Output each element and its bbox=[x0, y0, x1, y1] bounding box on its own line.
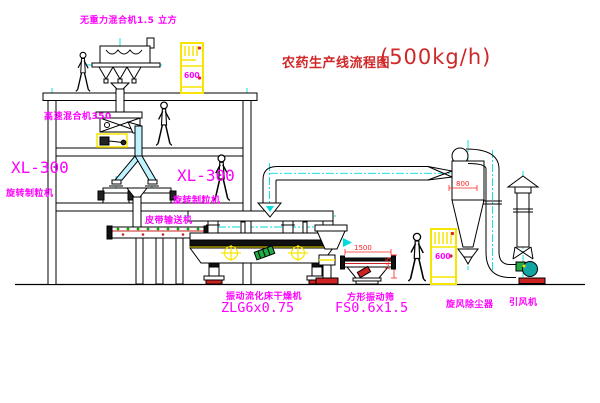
exhaust-stack bbox=[508, 176, 538, 259]
cabinet2-mark: 600 bbox=[435, 252, 451, 261]
label-belt-conveyor: 皮带输送机 bbox=[145, 213, 193, 226]
diagram-capacity: (500kg/h) bbox=[380, 45, 491, 69]
dim-sieve-width: 1500 bbox=[354, 244, 372, 252]
label-granulator-right-name: 旋转制粒机 bbox=[173, 193, 221, 206]
fluid-bed-dryer bbox=[190, 221, 335, 284]
person-top-floor bbox=[76, 52, 90, 91]
dim-cyclone: 800 bbox=[456, 180, 469, 188]
label-sieve-model: FS0.6x1.5 bbox=[335, 300, 408, 316]
label-granulator-left-name: 旋转制粒机 bbox=[6, 186, 54, 199]
indicator-light bbox=[198, 46, 201, 49]
person-second-floor bbox=[156, 102, 172, 145]
diagram-title: 农药生产线流程图 bbox=[282, 52, 390, 71]
label-fan: 引风机 bbox=[509, 295, 538, 308]
control-cabinet-1 bbox=[181, 43, 203, 93]
dim-sieve-height: 745 bbox=[385, 257, 393, 270]
indicator-light bbox=[451, 232, 454, 235]
label-granulator-left-model: XL-300 bbox=[11, 158, 69, 177]
label-granulator-right-model: XL-300 bbox=[177, 166, 235, 185]
cabinet1-mark: 600 bbox=[184, 71, 200, 80]
draft-fan bbox=[516, 262, 545, 284]
label-high-speed-mixer: 高速混合机350 bbox=[44, 109, 112, 122]
label-cyclone: 旋风除尘器 bbox=[446, 297, 494, 310]
y-chute bbox=[112, 156, 157, 184]
diagram-canvas: 农药生产线流程图 (500kg/h) 无重力混合机1.5 立方 高速混合机350… bbox=[0, 0, 600, 403]
person-ground bbox=[408, 233, 425, 281]
dryer-support bbox=[204, 263, 327, 284]
label-gravity-mixer: 无重力混合机1.5 立方 bbox=[80, 13, 177, 26]
label-dryer-model: ZLG6x0.75 bbox=[221, 300, 294, 316]
